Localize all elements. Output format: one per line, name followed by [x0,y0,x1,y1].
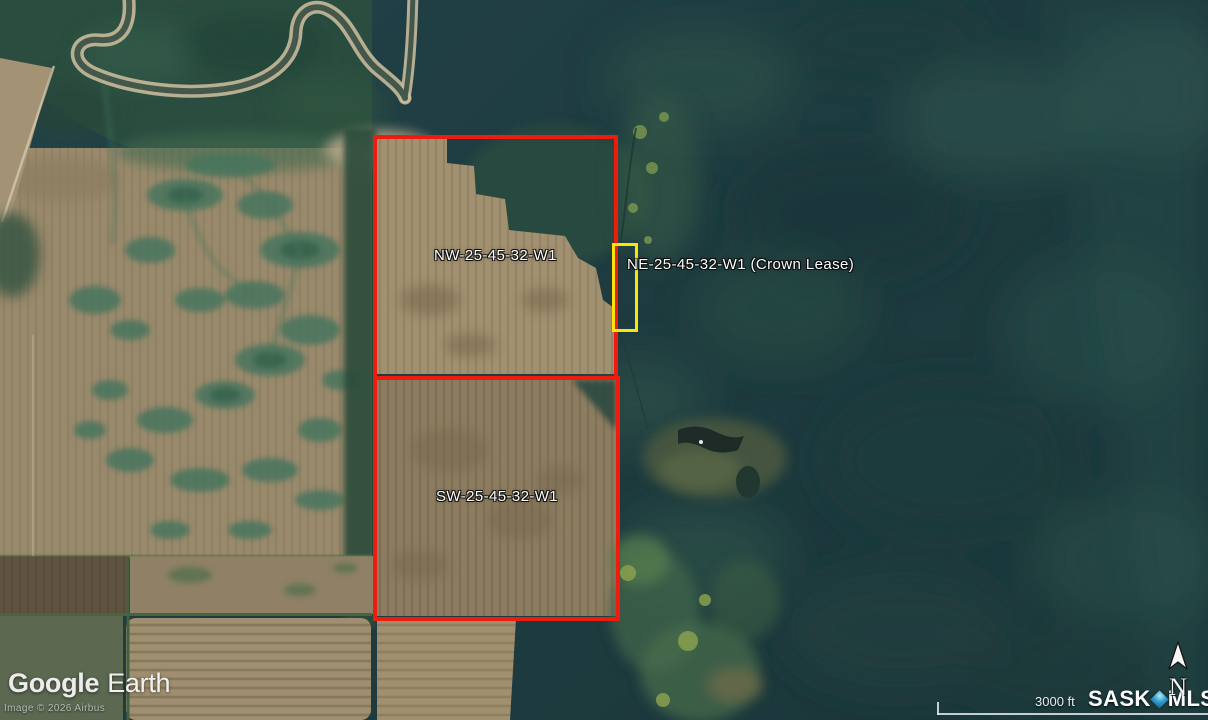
north-letter: N [1159,675,1197,700]
north-indicator: N [1159,640,1197,700]
parcel-label-sw: SW-25-45-32-W1 [436,488,558,505]
google-earth-map-view[interactable]: NW-25-45-32-W1 SW-25-45-32-W1 NE-25-45-3… [0,0,1208,720]
google-wordmark: Google [8,668,99,698]
imagery-copyright: Image © 2026 Airbus [4,703,105,714]
parcel-label-ne: NE-25-45-32-W1 (Crown Lease) [627,256,854,273]
earth-wordmark: Earth [107,668,170,698]
scale-label: 3000 ft [1035,694,1075,709]
parcel-label-nw: NW-25-45-32-W1 [434,247,557,264]
north-arrow-icon [1159,640,1197,672]
pond-clearing [643,418,787,498]
scale-bar [937,713,1208,715]
tree-strip [344,128,376,628]
google-earth-logo: GoogleEarth [8,668,170,699]
sask-wordmark: SASK [1088,688,1151,710]
